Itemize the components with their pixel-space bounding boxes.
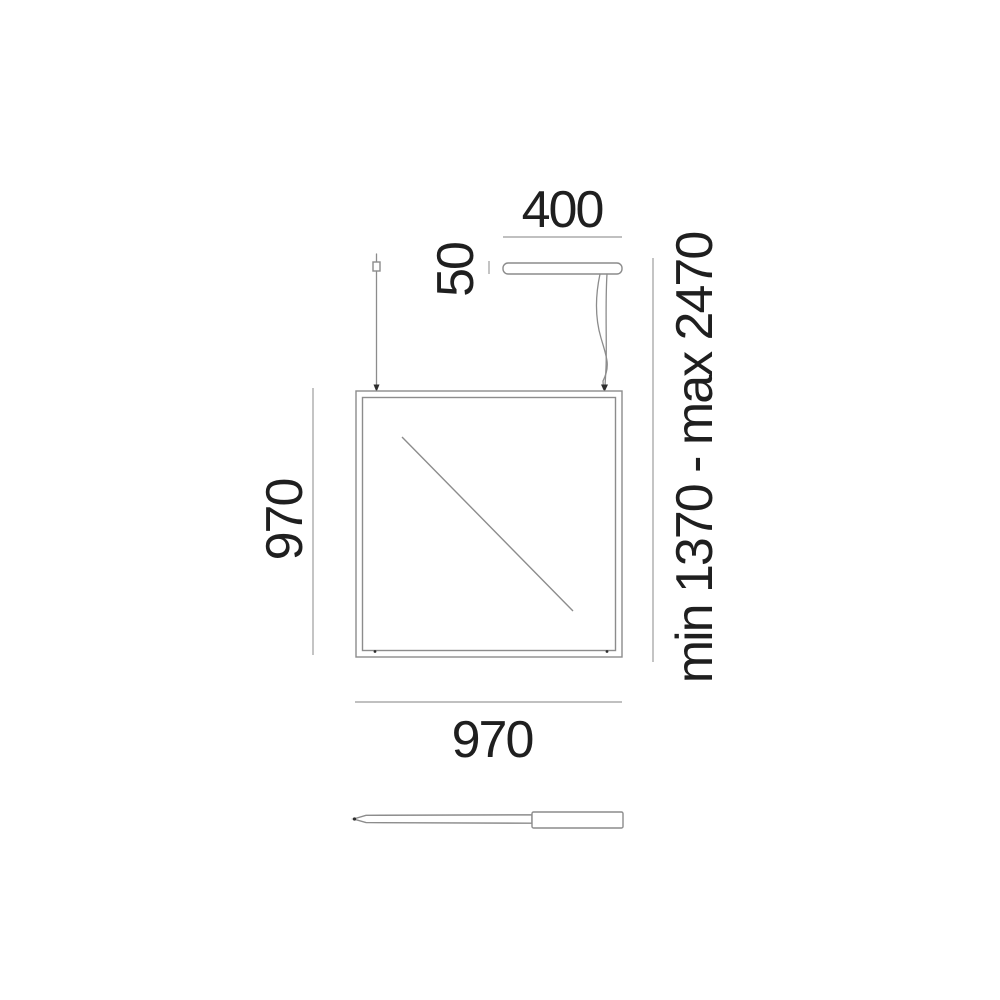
side-view-blade	[354, 815, 533, 823]
dimension-drawing: 400 50 970 min 1370 - max 2470 970	[0, 0, 1000, 1000]
cable-ferrule	[373, 262, 380, 271]
label-suspension-range: min 1370 - max 2470	[666, 233, 724, 684]
side-view-tip-dot	[353, 817, 356, 820]
technical-drawing-canvas: 400 50 970 min 1370 - max 2470 970	[0, 0, 1000, 1000]
label-panel-width: 970	[452, 711, 533, 769]
anchor-dot-bottom-left	[374, 650, 377, 653]
side-view-driver-housing	[532, 812, 623, 828]
label-panel-height: 970	[256, 480, 314, 561]
panel-outer-frame	[356, 391, 622, 657]
panel-side-view	[353, 812, 623, 828]
anchor-dot-bottom-right	[606, 650, 609, 653]
ceiling-canopy	[503, 263, 622, 274]
label-canopy-width: 400	[522, 181, 603, 239]
suspension-cable-right	[596, 274, 608, 392]
label-canopy-height: 50	[427, 243, 485, 297]
panel-front-view	[356, 391, 622, 657]
suspension-cable-left	[373, 254, 380, 392]
